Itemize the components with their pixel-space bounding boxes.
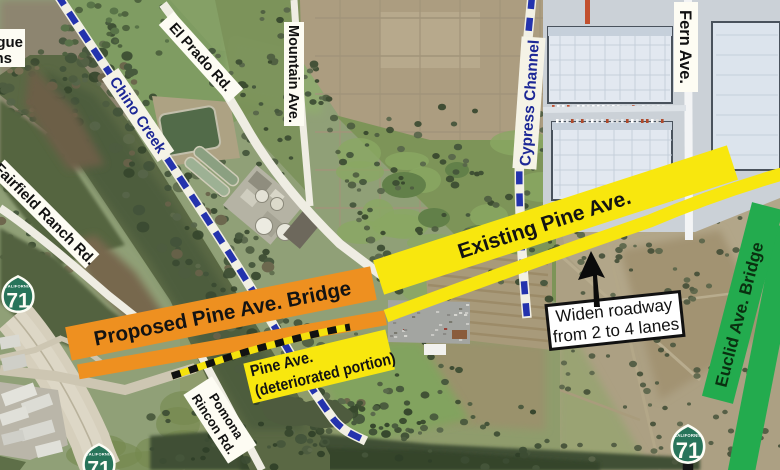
svg-text:CALIFORNIA: CALIFORNIA <box>5 284 32 289</box>
svg-text:Mountain Ave.: Mountain Ave. <box>285 25 301 123</box>
svg-text:Fern Ave.: Fern Ave. <box>676 10 694 84</box>
svg-text:71: 71 <box>87 458 111 470</box>
svg-text:ns: ns <box>0 50 12 67</box>
svg-text:71: 71 <box>676 438 701 463</box>
svg-text:CALIFORNIA: CALIFORNIA <box>86 452 113 457</box>
svg-text:71: 71 <box>6 290 30 313</box>
svg-text:gue: gue <box>0 34 23 51</box>
